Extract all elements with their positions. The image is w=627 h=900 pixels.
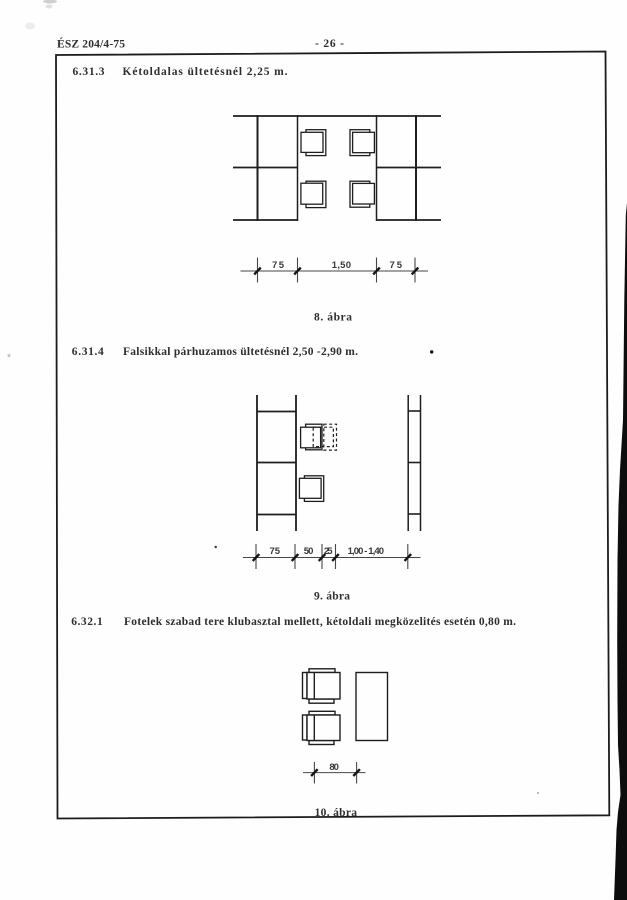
svg-text:75: 75 xyxy=(390,260,403,271)
svg-text:10. ábra: 10. ábra xyxy=(315,807,358,819)
svg-text:6.31.4: 6.31.4 xyxy=(72,346,104,358)
svg-text:25: 25 xyxy=(324,546,333,557)
svg-text:9. ábra: 9. ábra xyxy=(314,591,350,603)
svg-text:Kétoldalas ültetésnél 2,25 m.: Kétoldalas ültetésnél 2,25 m. xyxy=(123,66,288,78)
svg-text:8. ábra: 8. ábra xyxy=(314,312,352,324)
svg-text:Fotelek szabad tere klubasztal: Fotelek szabad tere klubasztal mellett, … xyxy=(124,616,516,628)
svg-text:Falsikkal párhuzamos ültetésné: Falsikkal párhuzamos ültetésnél 2,50 -2,… xyxy=(123,346,358,358)
svg-text:6.32.1: 6.32.1 xyxy=(71,616,103,628)
svg-text:1,50: 1,50 xyxy=(332,260,351,271)
svg-text:1,00 - 1,40: 1,00 - 1,40 xyxy=(348,546,384,557)
svg-text:6.31.3: 6.31.3 xyxy=(73,66,105,78)
svg-text:ÉSZ 204/4-75: ÉSZ 204/4-75 xyxy=(57,37,125,51)
svg-text:80: 80 xyxy=(329,762,339,773)
svg-text:- 26 -: - 26 - xyxy=(315,38,344,50)
svg-text:75: 75 xyxy=(270,546,281,557)
svg-text:75: 75 xyxy=(272,260,285,271)
svg-text:50: 50 xyxy=(304,546,314,557)
